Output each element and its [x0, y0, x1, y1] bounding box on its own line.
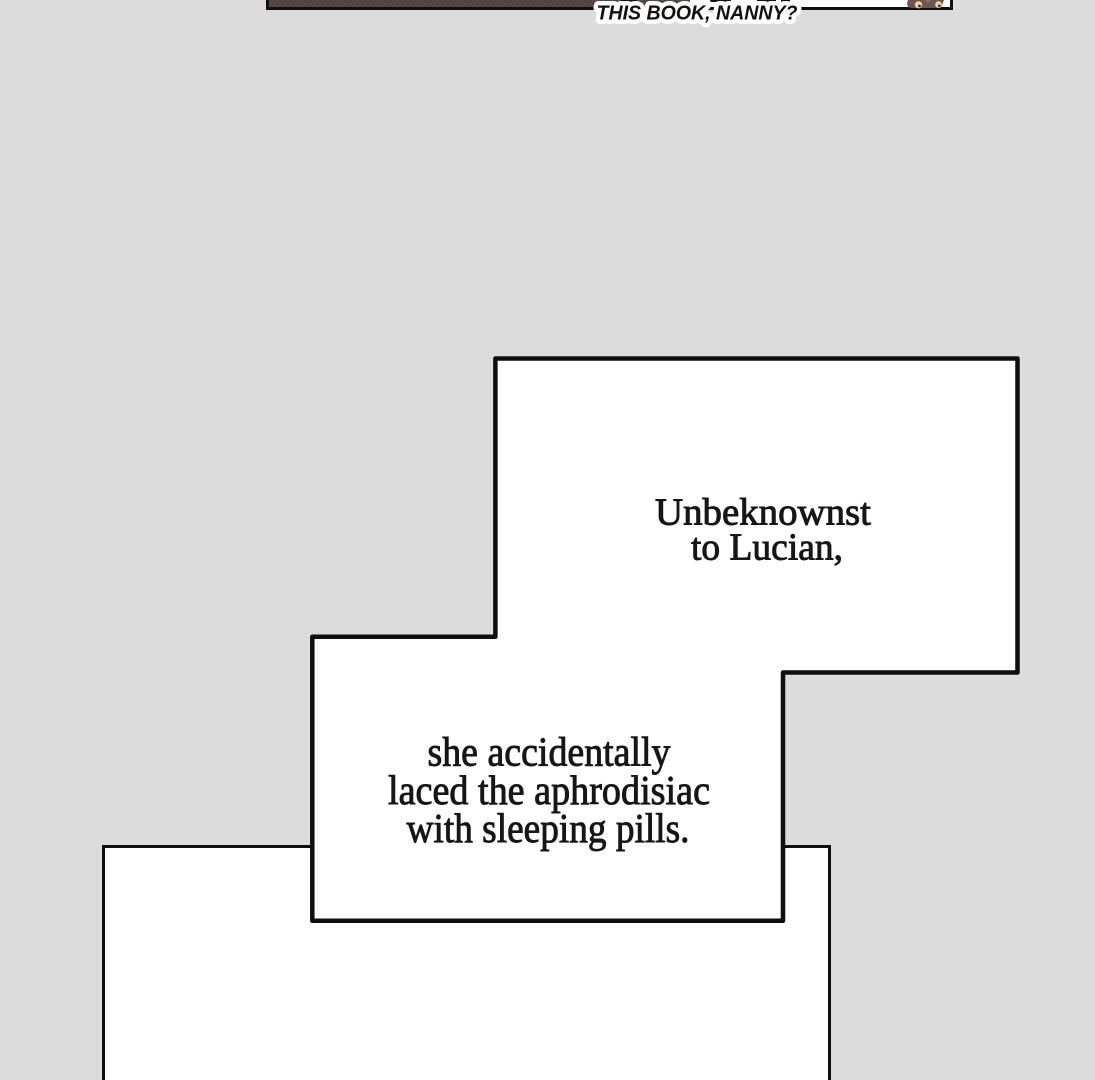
- svg-text:to Lucian,: to Lucian,: [691, 527, 843, 569]
- svg-text:with sleeping pills.: with sleeping pills.: [407, 805, 690, 851]
- svg-text:THIS BOOK, NANNY?: THIS BOOK, NANNY?: [597, 3, 798, 25]
